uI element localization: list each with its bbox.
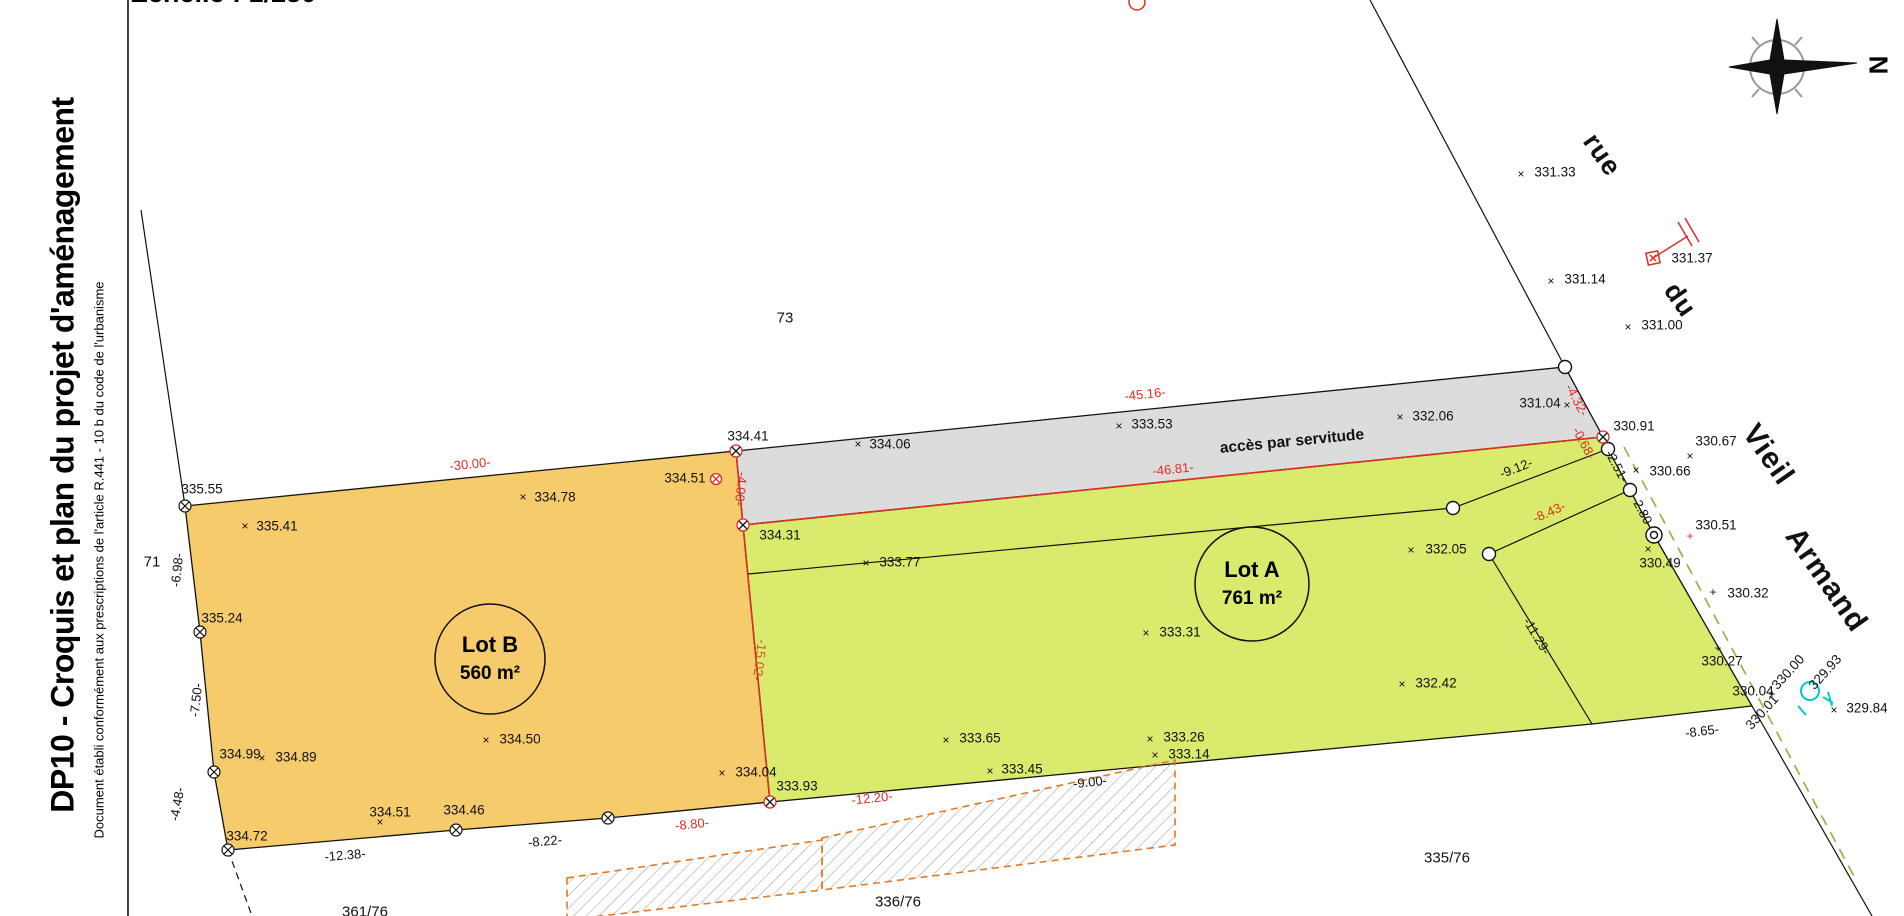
survey-label: 330.51 <box>1695 518 1736 533</box>
point-marker: × <box>1830 703 1837 717</box>
point-marker: × <box>1547 274 1554 288</box>
survey-label: 330.91 <box>1613 419 1654 434</box>
point-marker: × <box>718 766 725 780</box>
survey-label: 330.49 <box>1639 556 1680 571</box>
point-marker: × <box>1644 542 1651 556</box>
survey-label: 335.41 <box>256 519 297 534</box>
point-marker: × <box>862 556 869 570</box>
survey-label: 335.24 <box>201 611 242 626</box>
point-marker: × <box>1563 398 1570 412</box>
survey-label: 334.46 <box>443 803 484 818</box>
point-marker: × <box>1686 449 1693 463</box>
survey-label: 332.42 <box>1415 676 1456 691</box>
survey-label: 334.51 <box>664 471 705 486</box>
point-marker: × <box>1396 410 1403 424</box>
survey-label: 334.78 <box>534 490 575 505</box>
parcel-71-boundary <box>141 210 185 506</box>
survey-label: 331.00 <box>1641 318 1682 333</box>
survey-label: 361/76 <box>342 904 388 916</box>
lot-b-area: 560 m² <box>460 663 520 685</box>
point-marker: × <box>241 519 248 533</box>
survey-label: 331.14 <box>1564 272 1605 287</box>
survey-label: 334.89 <box>275 750 316 765</box>
survey-label: 329.84 <box>1846 701 1887 716</box>
point-marker: × <box>1517 167 1524 181</box>
survey-label: 331.04 <box>1519 396 1560 411</box>
lot-a-area: 761 m² <box>1222 588 1282 610</box>
survey-label: 333.45 <box>1001 762 1042 777</box>
lot-a-name: Lot A <box>1224 557 1279 583</box>
survey-label: 333.53 <box>1131 417 1172 432</box>
survey-label: 334.72 <box>226 829 267 844</box>
cadastral-plan: DP10 - Croquis et plan du projet d'aména… <box>0 0 1904 916</box>
road-edge-south <box>1752 706 1872 916</box>
point-marker: × <box>482 733 489 747</box>
survey-label: 336/76 <box>875 894 921 911</box>
boundary-dashed-continuation <box>228 850 252 916</box>
point-marker: × <box>854 437 861 451</box>
point-marker: × <box>1115 419 1122 433</box>
survey-label: -8.22- <box>527 832 562 850</box>
survey-label: 333.93 <box>776 779 817 794</box>
point-marker: × <box>1407 543 1414 557</box>
point-marker: + <box>1686 529 1693 543</box>
red-marker-circle <box>1129 0 1145 10</box>
scale-label: Echelle : 1/250 <box>130 0 316 9</box>
survey-label: 330.27 <box>1701 654 1742 669</box>
point-marker: × <box>1151 748 1158 762</box>
survey-label: 335/76 <box>1424 850 1470 867</box>
point-marker: × <box>986 764 993 778</box>
point-marker: × <box>1398 677 1405 691</box>
survey-label: 333.65 <box>959 731 1000 746</box>
survey-label: 334.31 <box>759 528 800 543</box>
survey-label: 333.14 <box>1168 747 1209 762</box>
document-subtitle: Document établi conformément aux prescri… <box>92 281 107 838</box>
survey-label: 333.77 <box>879 555 920 570</box>
double-circle-vertex <box>1646 527 1662 543</box>
document-title: DP10 - Croquis et plan du projet d'aména… <box>45 97 82 812</box>
survey-label: 335.55 <box>181 482 222 497</box>
point-marker: + <box>1768 687 1775 701</box>
point-marker: × <box>258 751 265 765</box>
survey-label: 332.05 <box>1425 542 1466 557</box>
survey-label: 333.26 <box>1163 730 1204 745</box>
survey-label: 330.32 <box>1727 586 1768 601</box>
survey-label: 331.37 <box>1671 251 1712 266</box>
point-marker: × <box>1624 320 1631 334</box>
point-marker: × <box>942 733 949 747</box>
point-marker: × <box>1146 732 1153 746</box>
survey-label: 334.06 <box>869 437 910 452</box>
survey-label: 331.33 <box>1534 165 1575 180</box>
survey-label: 330.66 <box>1649 464 1690 479</box>
compass-icon <box>1729 19 1857 114</box>
lot-b-name: Lot B <box>462 632 518 658</box>
survey-label: 333.31 <box>1159 625 1200 640</box>
point-marker: × <box>1142 626 1149 640</box>
survey-label: 334.99 <box>219 747 260 762</box>
north-label: N <box>1863 56 1894 75</box>
survey-label: 334.50 <box>499 732 540 747</box>
road-west-edge <box>1370 0 1565 367</box>
point-marker: + <box>1709 585 1716 599</box>
survey-label: 334.41 <box>727 429 768 444</box>
point-marker: × <box>519 490 526 504</box>
point-marker: × <box>1632 463 1639 477</box>
hatched-area-left <box>567 840 822 916</box>
point-marker: + <box>1714 641 1721 655</box>
survey-label: 330.67 <box>1695 434 1736 449</box>
point-marker: × <box>376 815 383 829</box>
survey-label: 71 <box>144 554 161 571</box>
survey-label: 73 <box>777 310 794 327</box>
survey-label: 332.06 <box>1412 409 1453 424</box>
survey-label: 334.04 <box>735 765 776 780</box>
